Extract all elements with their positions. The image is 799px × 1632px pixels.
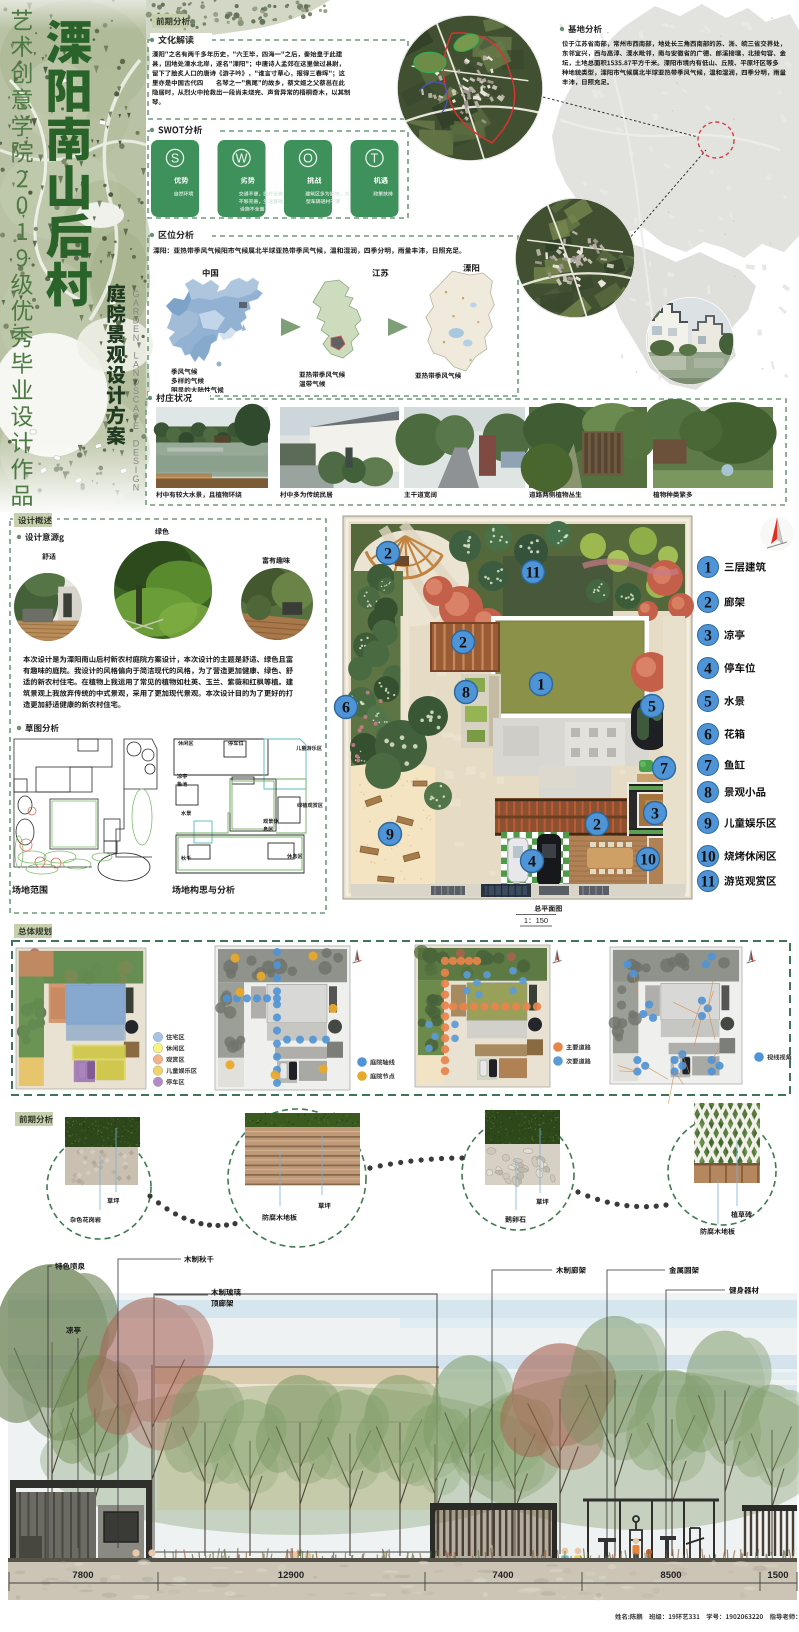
svg-text:5: 5 xyxy=(704,693,712,710)
svg-text:11: 11 xyxy=(701,873,716,890)
svg-text:7400: 7400 xyxy=(492,1570,513,1581)
svg-text:8: 8 xyxy=(704,784,712,801)
svg-text:7: 7 xyxy=(704,757,712,774)
svg-text:10: 10 xyxy=(700,848,716,865)
svg-text:S: S xyxy=(171,152,179,166)
svg-text:2: 2 xyxy=(384,545,392,562)
svg-text:W: W xyxy=(236,152,248,166)
svg-text:T: T xyxy=(371,152,379,166)
svg-text:1: 1 xyxy=(704,559,712,576)
svg-text:1：150: 1：150 xyxy=(524,916,548,925)
svg-text:4: 4 xyxy=(704,660,712,677)
svg-text:1500: 1500 xyxy=(767,1570,788,1581)
svg-text:N: N xyxy=(133,483,140,493)
svg-text:7800: 7800 xyxy=(72,1570,93,1581)
svg-text:6: 6 xyxy=(342,699,350,716)
svg-text:1: 1 xyxy=(537,676,545,693)
svg-text:12900: 12900 xyxy=(278,1570,304,1581)
svg-text:9: 9 xyxy=(704,815,712,832)
svg-text:2: 2 xyxy=(459,634,467,651)
svg-text:7: 7 xyxy=(660,760,668,777)
svg-text:3: 3 xyxy=(704,627,712,644)
svg-text:8500: 8500 xyxy=(660,1570,681,1581)
svg-text:2: 2 xyxy=(593,816,601,833)
svg-text:4: 4 xyxy=(528,853,536,870)
svg-text:9: 9 xyxy=(386,826,394,843)
svg-text:5: 5 xyxy=(648,698,656,715)
svg-text:6: 6 xyxy=(704,726,712,743)
svg-text:10: 10 xyxy=(640,851,656,868)
svg-text:2: 2 xyxy=(704,594,712,611)
svg-text:3: 3 xyxy=(651,805,659,822)
svg-text:O: O xyxy=(303,152,313,166)
svg-text:8: 8 xyxy=(462,684,470,701)
svg-text:E: E xyxy=(133,421,139,431)
svg-text:11: 11 xyxy=(525,564,540,581)
svg-text:N: N xyxy=(133,333,140,343)
